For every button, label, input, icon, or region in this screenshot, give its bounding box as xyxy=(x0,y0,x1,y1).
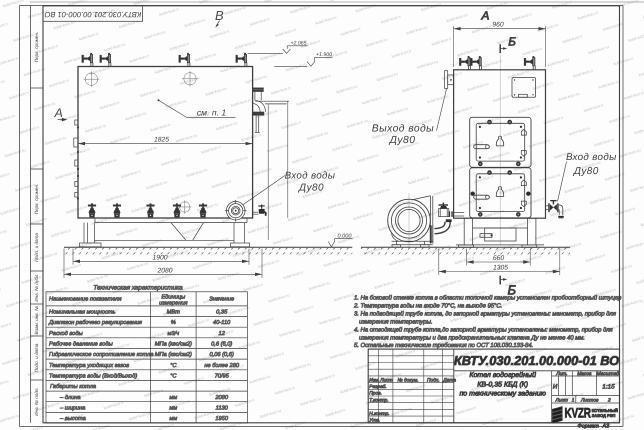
svg-text:1305: 1305 xyxy=(493,265,508,272)
svg-text:Лист: Лист xyxy=(555,398,568,404)
svg-text:Инв. № подл.: Инв. № подл. xyxy=(34,387,39,416)
svg-text:Ду80: Ду80 xyxy=(298,183,324,194)
svg-text:Ду80: Ду80 xyxy=(573,166,599,177)
svg-text:KVZR: KVZR xyxy=(565,406,591,421)
svg-text:№ докум.: № докум. xyxy=(398,377,419,383)
svg-text:м3/ч: м3/ч xyxy=(168,330,180,337)
svg-text:Листов: Листов xyxy=(580,398,599,404)
svg-text:Масса: Масса xyxy=(577,371,592,377)
svg-text:КВТУ.030.201.00.000-01 ВО: КВТУ.030.201.00.000-01 ВО xyxy=(454,353,619,368)
svg-text:1950: 1950 xyxy=(215,416,228,422)
svg-text:5. Остальные технические треб: 5. Остальные технические требования по О… xyxy=(354,342,533,349)
svg-text:– ширина: – ширина xyxy=(59,405,85,411)
svg-text:Формат: Формат xyxy=(578,424,600,430)
svg-text:– высота: – высота xyxy=(59,416,86,422)
svg-text:70/95: 70/95 xyxy=(215,373,230,380)
svg-text:2080: 2080 xyxy=(214,395,228,401)
svg-text:В: В xyxy=(215,8,224,23)
svg-text:МПа (кгс/см2): МПа (кгс/см2) xyxy=(155,351,192,358)
svg-text:ЗАВОД РЭП: ЗАВОД РЭП xyxy=(592,413,616,418)
svg-text:Перв. примен.: Перв. примен. xyxy=(34,184,39,215)
svg-text:4. На отводящей трубе котла,д: 4. На отводящей трубе котла,до запорной … xyxy=(354,326,614,333)
svg-text:Подп.: Подп. xyxy=(427,377,440,383)
svg-text:А3: А3 xyxy=(602,424,610,430)
svg-text:Лит.: Лит. xyxy=(555,371,567,377)
svg-text:Габариты котла: Габариты котла xyxy=(50,383,96,390)
svg-text:°С: °С xyxy=(170,374,177,380)
svg-text:2. Температура воды на входе: 2. Температура воды на входе 70°С, на вы… xyxy=(353,302,502,309)
svg-text:Вход воды: Вход воды xyxy=(566,152,617,163)
svg-text:Подп. и дата: Подп. и дата xyxy=(34,343,39,372)
svg-text:мм: мм xyxy=(169,395,177,401)
svg-text:не более 280: не более 280 xyxy=(204,362,240,369)
svg-text:КВТУ.030.201.00.000-01 ВО: КВТУ.030.201.00.000-01 ВО xyxy=(45,10,142,19)
svg-text:Инв. № дубл.: Инв. № дубл. xyxy=(34,273,39,301)
svg-text:по техническому заданию: по техническому заданию xyxy=(459,389,546,397)
svg-text:Дата: Дата xyxy=(442,377,456,383)
svg-text:Разраб.: Разраб. xyxy=(369,384,386,390)
svg-text:12: 12 xyxy=(219,331,226,337)
svg-text:измерения температуры.: измерения температуры. xyxy=(359,319,433,325)
svg-text:1: 1 xyxy=(572,398,575,404)
svg-text:0.000: 0.000 xyxy=(338,234,353,240)
svg-text:2: 2 xyxy=(607,398,611,404)
svg-text:3. На подводящей трубе котла,: 3. На подводящей трубе котла, до запорно… xyxy=(354,310,617,317)
svg-text:0,35: 0,35 xyxy=(216,310,228,316)
svg-text:0,6 (6,0): 0,6 (6,0) xyxy=(211,341,232,348)
svg-text:Значение: Значение xyxy=(209,297,234,303)
svg-text:А: А xyxy=(481,8,490,22)
svg-text:Вход воды: Вход воды xyxy=(285,171,336,182)
svg-text:Масштаб: Масштаб xyxy=(597,371,620,377)
svg-text:Б: Б xyxy=(508,35,516,49)
svg-text:Взам. инв. №: Взам. инв. № xyxy=(34,306,39,334)
svg-text:Диапазон рабочего регулировани: Диапазон рабочего регулирования xyxy=(48,319,142,326)
svg-text:Ду80: Ду80 xyxy=(389,135,416,146)
svg-text:660: 660 xyxy=(493,255,505,262)
svg-text:– длина: – длина xyxy=(59,394,81,401)
svg-text:Т.контр.: Т.контр. xyxy=(369,397,388,403)
svg-text:1900: 1900 xyxy=(152,255,167,262)
svg-text:Котел водогрейный: Котел водогрейный xyxy=(469,371,536,379)
svg-text:Единицы: Единицы xyxy=(161,294,186,301)
svg-text:Лист: Лист xyxy=(379,377,392,383)
svg-text:Наименование показателя: Наименование показателя xyxy=(49,297,122,303)
svg-text:И: И xyxy=(553,384,558,391)
svg-text:960: 960 xyxy=(492,22,504,29)
svg-text:1. На боковой стенке котла в: 1. На боковой стенке котла в области топ… xyxy=(354,295,622,302)
svg-text:КВ-0,35 КБД (К): КВ-0,35 КБД (К) xyxy=(477,380,528,388)
svg-text:см. п. 1: см. п. 1 xyxy=(197,107,226,117)
svg-text:Техническая характеристика: Техническая характеристика xyxy=(93,284,183,291)
svg-text:Изм.: Изм. xyxy=(369,377,379,383)
svg-text:МВт: МВт xyxy=(167,310,181,316)
svg-text:°С: °С xyxy=(170,363,177,369)
svg-text:Выход воды: Выход воды xyxy=(372,123,434,134)
svg-text:%: % xyxy=(171,320,176,326)
svg-text:Номинальная мощность: Номинальная мощность xyxy=(49,310,115,316)
svg-text:МПа (кгс/см2): МПа (кгс/см2) xyxy=(155,341,192,348)
svg-text:измерения: измерения xyxy=(159,301,187,307)
svg-text:Подп. и дата: Подп. и дата xyxy=(34,233,39,262)
svg-text:2080: 2080 xyxy=(156,267,172,274)
svg-text:Пров.: Пров. xyxy=(369,391,382,397)
svg-text:40-110: 40-110 xyxy=(213,320,231,326)
svg-text:Утв.: Утв. xyxy=(369,418,380,424)
svg-text:+1.900: +1.900 xyxy=(316,52,332,58)
svg-text:1825: 1825 xyxy=(154,137,169,144)
svg-text:мм: мм xyxy=(169,405,177,411)
svg-text:Расход воды: Расход воды xyxy=(49,330,83,337)
svg-text:1:15: 1:15 xyxy=(602,384,615,391)
svg-text:Температура уходящих газов: Температура уходящих газов xyxy=(49,362,129,369)
svg-text:1130: 1130 xyxy=(216,405,229,411)
svg-text:+2.065: +2.065 xyxy=(291,41,307,47)
svg-text:А: А xyxy=(54,106,63,120)
svg-text:Перв. примен.: Перв. примен. xyxy=(34,32,39,63)
svg-text:Рабочее давление воды: Рабочее давление воды xyxy=(49,341,114,348)
svg-text:Гидравлическое сопротивление к: Гидравлическое сопротивление котла xyxy=(49,351,154,358)
svg-text:Н.контр.: Н.контр. xyxy=(369,411,389,417)
svg-text:измерения температуры и два пр: измерения температуры и два предохраните… xyxy=(359,334,585,341)
svg-text:Температура воды (Вход/Выход): Температура воды (Вход/Выход) xyxy=(49,373,137,380)
svg-text:мм: мм xyxy=(169,416,177,422)
svg-text:0,06 (0,6): 0,06 (0,6) xyxy=(210,351,234,358)
